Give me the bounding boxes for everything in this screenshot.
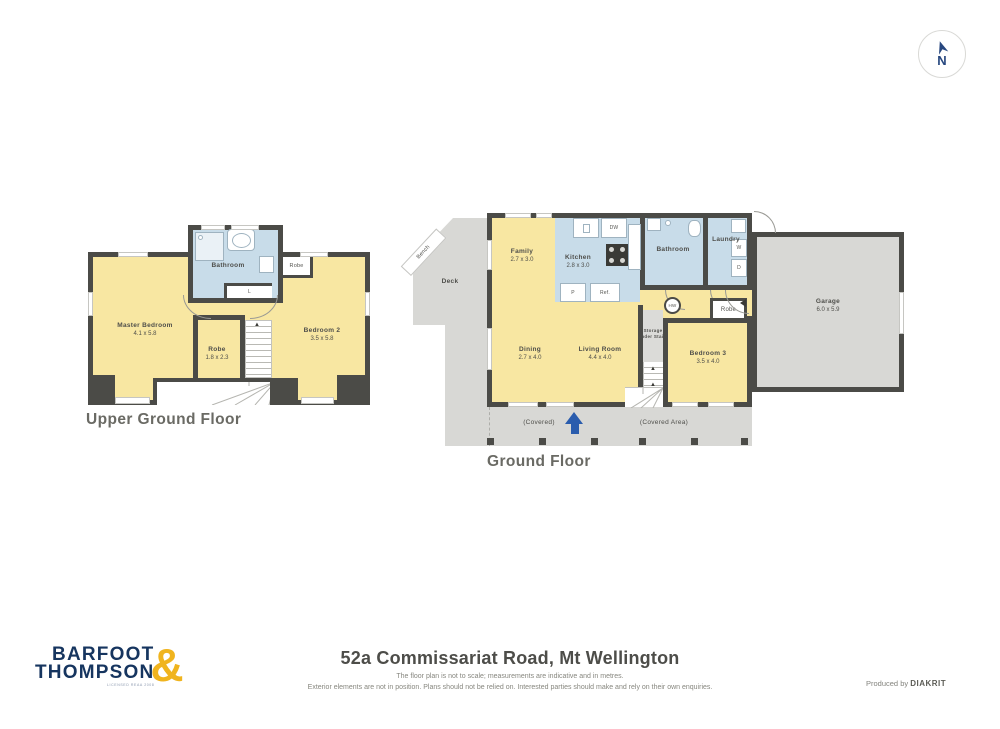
room-label-robe: Robe 1.8 x 2.3 (191, 346, 243, 363)
dishwasher-label: DW (602, 219, 626, 237)
dryer: D (731, 259, 747, 277)
window (201, 225, 225, 230)
floorplan-page: N L Robe ▲ (0, 0, 1000, 729)
window (300, 252, 328, 257)
entry-direction-marker (740, 299, 746, 307)
hot-water-cylinder: HW (664, 297, 681, 314)
room-label-bedroom2: Bedroom 2 3.5 x 5.8 (276, 327, 368, 344)
window (115, 397, 150, 404)
dryer-label: D (732, 260, 746, 276)
porch-post (487, 438, 494, 445)
covered-area-label: (Covered Area) (622, 419, 706, 426)
address-block: 52a Commissariat Road, Mt Wellington The… (230, 648, 790, 694)
room-label-bathroom-ground: Bathroom (641, 246, 705, 254)
hot-water-label: HW (666, 299, 679, 312)
porch-post (691, 438, 698, 445)
room-label-dining: Dining 2.7 x 4.0 (500, 346, 560, 363)
porch-post (539, 438, 546, 445)
shower-head-icon (665, 220, 671, 226)
stair-winder (153, 378, 275, 405)
room-label-kitchen: Kitchen 2.8 x 3.0 (543, 254, 613, 271)
upper-floor-title: Upper Ground Floor (86, 411, 241, 429)
stair-winder (625, 387, 663, 407)
covered-label: (Covered) (508, 419, 570, 426)
north-compass: N (918, 30, 966, 78)
floor-plan-upper: L Robe ▲ Ma (88, 225, 370, 435)
ground-floor-title: Ground Floor (487, 453, 591, 471)
fridge-label: Ref. (591, 284, 619, 301)
room-label-living-room: Living Room 4.4 x 4.0 (568, 346, 632, 363)
deck-label: Deck (424, 278, 476, 286)
window (231, 225, 259, 230)
window (365, 292, 370, 316)
bathtub-icon (227, 229, 255, 251)
window (88, 292, 93, 316)
fridge: Ref. (590, 283, 620, 302)
disclaimer-line2: Exterior elements are not in position. P… (230, 683, 790, 694)
produced-by-text: Produced by (866, 679, 908, 688)
room-label-garage: Garage 6.0 x 5.9 (788, 298, 868, 315)
shower-head-icon (198, 235, 203, 240)
room-label-laundry: Laundry (703, 236, 749, 244)
floor-plan-ground: Bench Deck DW (410, 210, 910, 480)
wall (270, 378, 298, 405)
window (536, 213, 552, 218)
room-label-master-bedroom: Master Bedroom 4.1 x 5.8 (95, 322, 195, 339)
window (301, 397, 334, 404)
disclaimer-line1: The floor plan is not to scale; measurem… (230, 672, 790, 683)
window (899, 292, 904, 334)
logo-ampersand: & (150, 646, 183, 685)
porch-post (639, 438, 646, 445)
window (708, 402, 734, 407)
room-label-storage: Storage Under Stairs (636, 328, 670, 340)
stair-direction-arrow: ▲ (254, 322, 260, 328)
room-label-bedroom3: Bedroom 3 3.5 x 4.0 (677, 350, 739, 367)
robe-bedroom2-label: Robe (283, 257, 310, 275)
produced-by: Produced by DIAKRIT (866, 679, 946, 688)
winder-steps-icon (157, 382, 275, 405)
pantry: P (560, 283, 586, 302)
covered-porch (490, 407, 752, 446)
room-label-bathroom-upper: Bathroom (191, 262, 265, 270)
winder-steps-icon (625, 388, 663, 408)
porch-post (591, 438, 598, 445)
pantry-label: P (561, 284, 585, 301)
logo-tagline: LICENSED REAA 2008 (107, 683, 154, 687)
laundry-tub-icon (731, 219, 746, 233)
sink-icon (647, 218, 661, 231)
logo-line2: THOMPSON (35, 664, 154, 682)
window (118, 252, 148, 257)
robe-bedroom2: Robe (283, 257, 313, 278)
north-label: N (937, 53, 946, 68)
stair-direction-arrow: ▲ (650, 366, 656, 372)
stairs-upper (245, 320, 272, 378)
wall (337, 375, 368, 405)
tall-cabinet (628, 224, 641, 270)
door-arc (754, 211, 776, 233)
window (672, 402, 698, 407)
wall (88, 375, 115, 405)
sink-icon (573, 218, 599, 238)
dishwasher: DW (601, 218, 627, 238)
wall (663, 318, 752, 323)
property-address: 52a Commissariat Road, Mt Wellington (230, 648, 790, 669)
producer-name: DIAKRIT (910, 679, 946, 688)
window (546, 402, 574, 407)
window (487, 328, 492, 370)
toilet-icon (688, 220, 701, 237)
window (508, 402, 538, 407)
porch-post (741, 438, 748, 445)
logo-line1: BARFOOT (52, 646, 154, 664)
window (505, 213, 531, 218)
barfoot-thompson-logo: BARFOOT THOMPSON LICENSED REAA 2008 & (35, 646, 184, 687)
